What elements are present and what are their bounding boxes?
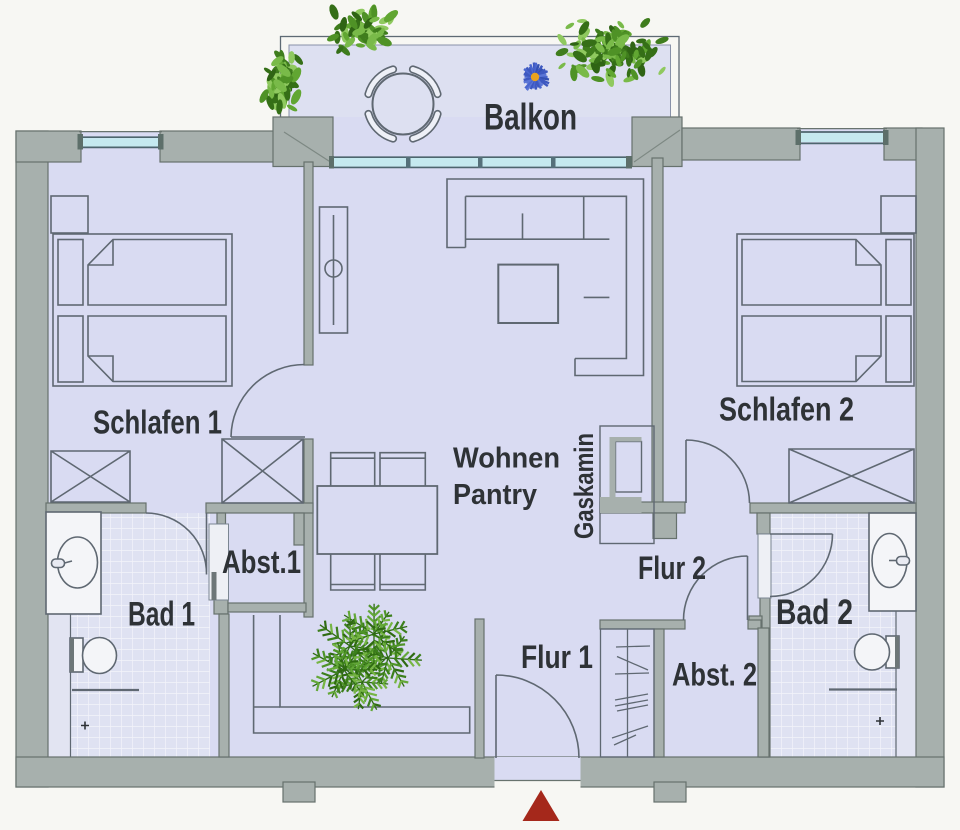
- svg-text:Schlafen 2: Schlafen 2: [719, 392, 854, 429]
- svg-text:Bad 2: Bad 2: [776, 593, 853, 632]
- svg-text:Abst. 2: Abst. 2: [672, 657, 757, 693]
- svg-text:Wohnen: Wohnen: [453, 443, 560, 475]
- svg-text:Abst.1: Abst.1: [222, 544, 301, 580]
- svg-text:Gaskamin: Gaskamin: [569, 433, 599, 539]
- svg-text:Flur 1: Flur 1: [521, 639, 593, 675]
- svg-text:Pantry: Pantry: [453, 479, 537, 511]
- svg-text:Balkon: Balkon: [484, 97, 577, 138]
- svg-text:Bad 1: Bad 1: [128, 596, 195, 634]
- svg-text:Schlafen 1: Schlafen 1: [93, 405, 222, 442]
- svg-text:Flur 2: Flur 2: [638, 550, 706, 586]
